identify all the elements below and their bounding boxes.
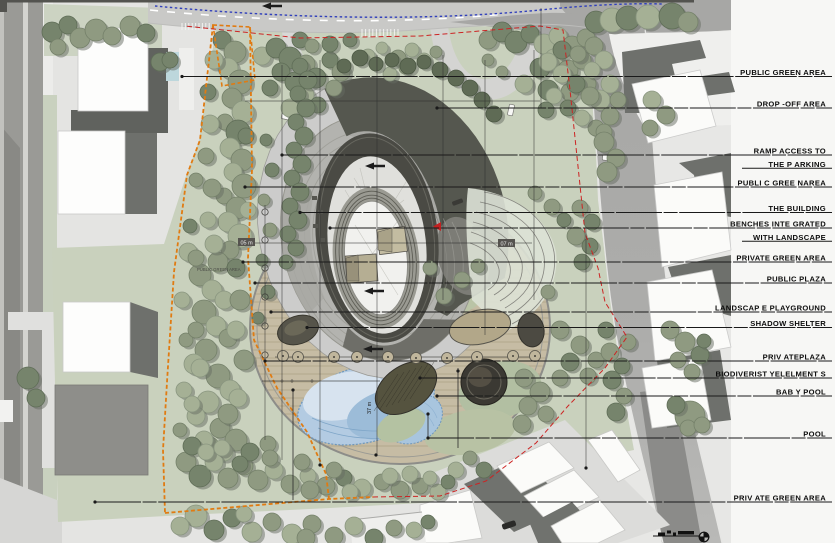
svg-text:RAMP ACCESS TO: RAMP ACCESS TO — [754, 147, 826, 156]
svg-text:PUBLIC GREEN AREA: PUBLIC GREEN AREA — [740, 68, 826, 77]
svg-text:07 m: 07 m — [501, 242, 514, 248]
svg-text:PUBLIC GREEN AREA: PUBLIC GREEN AREA — [197, 267, 241, 272]
svg-text:PRIV ATE GREEN AREA: PRIV ATE GREEN AREA — [734, 494, 827, 503]
svg-text:BAB Y POOL: BAB Y POOL — [776, 388, 826, 397]
svg-text:PRIV ATEPLAZA: PRIV ATEPLAZA — [763, 353, 827, 362]
svg-text:POOL: POOL — [803, 430, 826, 439]
svg-text:WITH LANDSCAPE: WITH LANDSCAPE — [753, 233, 826, 242]
svg-text:37 m: 37 m — [367, 401, 373, 414]
svg-text:THE P ARKING: THE P ARKING — [768, 160, 826, 169]
svg-text:LANDSCAP E PLAYGROUND: LANDSCAP E PLAYGROUND — [715, 304, 826, 313]
svg-text:BIODIVERIST YELELMENT S: BIODIVERIST YELELMENT S — [715, 370, 826, 379]
svg-text:PRIVATE GREEN AREA: PRIVATE GREEN AREA — [736, 254, 826, 263]
svg-text:PUBLIC PLAZA: PUBLIC PLAZA — [767, 275, 827, 284]
svg-text:SHADOW SHELTER: SHADOW SHELTER — [750, 319, 826, 328]
svg-text:BENCHES INTE GRATED: BENCHES INTE GRATED — [730, 220, 826, 229]
svg-text:05 m: 05 m — [241, 241, 254, 247]
svg-text:DROP -OFF AREA: DROP -OFF AREA — [757, 100, 826, 109]
svg-text:PUBLI C GREE NAREA: PUBLI C GREE NAREA — [737, 179, 826, 188]
svg-text:THE BUILDING: THE BUILDING — [768, 204, 826, 213]
